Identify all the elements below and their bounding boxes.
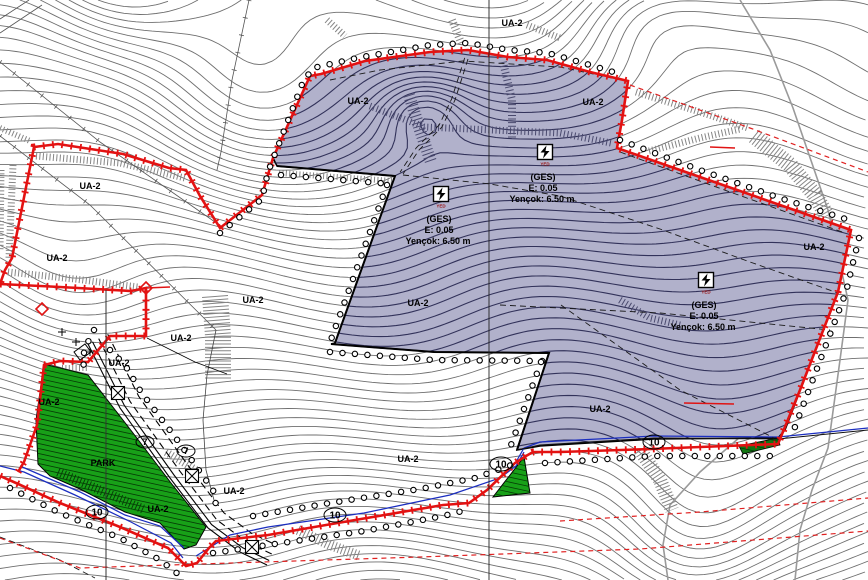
svg-text:10: 10 bbox=[329, 511, 341, 522]
svg-text:UA-2: UA-2 bbox=[79, 181, 100, 191]
svg-text:Yençok: 6.50 m: Yençok: 6.50 m bbox=[405, 236, 470, 246]
svg-text:UA-2: UA-2 bbox=[347, 96, 368, 106]
svg-text:UA-2: UA-2 bbox=[397, 454, 418, 464]
svg-text:UA-2: UA-2 bbox=[147, 504, 168, 514]
svg-text:YED: YED bbox=[540, 162, 550, 167]
svg-text:UA-2: UA-2 bbox=[38, 397, 59, 407]
svg-text:Yençok: 6.50 m: Yençok: 6.50 m bbox=[670, 322, 735, 332]
svg-text:UA-2: UA-2 bbox=[223, 486, 244, 496]
svg-text:10: 10 bbox=[91, 508, 103, 519]
svg-text:UA-2: UA-2 bbox=[108, 358, 129, 368]
svg-text:7: 7 bbox=[142, 437, 147, 447]
svg-text:PARK: PARK bbox=[91, 458, 116, 468]
svg-text:UA-2: UA-2 bbox=[589, 404, 610, 414]
svg-text:UA-2: UA-2 bbox=[582, 97, 603, 107]
svg-text:UA-2: UA-2 bbox=[46, 253, 67, 263]
svg-text:(GES): (GES) bbox=[530, 172, 555, 182]
svg-text:UA-2: UA-2 bbox=[407, 298, 428, 308]
svg-text:10: 10 bbox=[648, 438, 660, 449]
svg-text:10: 10 bbox=[495, 460, 507, 471]
svg-text:7: 7 bbox=[183, 446, 188, 456]
svg-text:YED: YED bbox=[436, 204, 446, 209]
svg-text:UA-2: UA-2 bbox=[501, 18, 522, 28]
svg-text:E: 0.05: E: 0.05 bbox=[528, 183, 557, 193]
svg-text:Yençok: 6.50 m: Yençok: 6.50 m bbox=[509, 194, 574, 204]
svg-text:(GES): (GES) bbox=[426, 214, 451, 224]
svg-text:UA-2: UA-2 bbox=[170, 333, 191, 343]
svg-text:UA-2: UA-2 bbox=[803, 242, 824, 252]
svg-text:(GES): (GES) bbox=[691, 300, 716, 310]
svg-text:UA-2: UA-2 bbox=[242, 295, 263, 305]
svg-text:E: 0.05: E: 0.05 bbox=[689, 311, 718, 321]
svg-text:YED: YED bbox=[701, 290, 711, 295]
svg-text:E: 0.05: E: 0.05 bbox=[424, 225, 453, 235]
